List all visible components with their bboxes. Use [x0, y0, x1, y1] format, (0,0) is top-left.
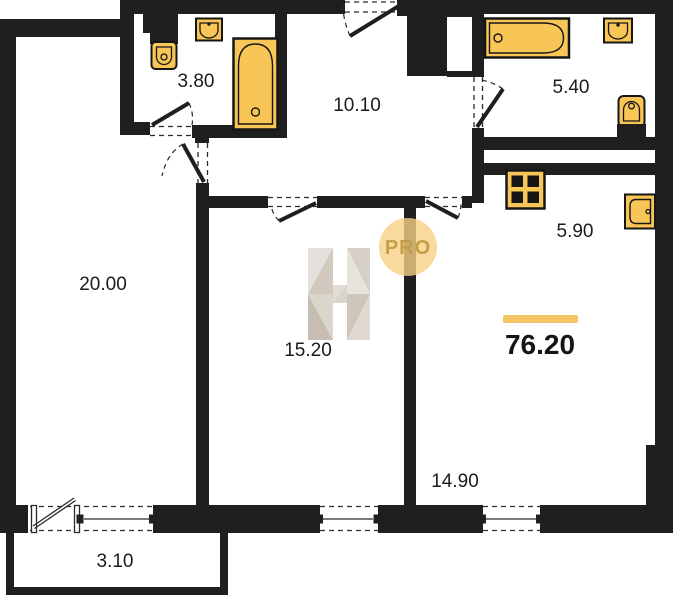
- bathtub-icon: [485, 19, 569, 58]
- wall-segment: [143, 14, 178, 33]
- h-logo: [308, 248, 370, 340]
- entrance-door: [343, 0, 407, 36]
- wall-segment: [120, 0, 345, 14]
- wall-segment: [196, 183, 209, 507]
- total-area-underline: [503, 315, 578, 323]
- wall-segment: [120, 0, 134, 135]
- sink-icon: [196, 19, 222, 41]
- total-area-badge: 76.20: [503, 315, 578, 360]
- door-ensuite-bathroom: [150, 103, 193, 136]
- wall-segment: [447, 71, 472, 77]
- area-label-kitchen: 5.90: [557, 221, 594, 242]
- wall-segment: [400, 0, 673, 14]
- area-label-bathroom: 5.40: [553, 77, 590, 98]
- sink-icon: [604, 19, 632, 43]
- wall-segment: [16, 505, 28, 533]
- wall-segment: [447, 14, 472, 17]
- toilet-icon: [150, 31, 178, 69]
- stove-icon: [507, 171, 545, 209]
- window-bedroom: [77, 515, 157, 524]
- wall-segment: [472, 128, 484, 203]
- door-bedroom: [162, 143, 208, 183]
- wall-segment: [655, 0, 673, 445]
- wall-segment: [484, 137, 655, 150]
- pro-badge: PRO: [379, 218, 437, 276]
- area-label-bedroom: 20.00: [79, 274, 127, 295]
- watermark-logo: PRO: [308, 218, 437, 340]
- door-living-room: [425, 198, 462, 219]
- toilet-icon: [617, 96, 646, 138]
- total-area-value: 76.20: [505, 329, 575, 360]
- floorplan-svg: 20.00 3.80 10.10 5.40 5.90 15.20 14.90 3…: [0, 0, 677, 600]
- bathtub-icon: [234, 39, 278, 130]
- wall-segment: [6, 587, 228, 595]
- area-label-bedroom-2: 15.20: [284, 340, 332, 361]
- wall-segment: [120, 122, 150, 135]
- door-bathroom: [474, 77, 503, 128]
- window-bedroom-2: [316, 507, 381, 531]
- wall-segment: [153, 505, 320, 533]
- area-label-hallway: 10.10: [333, 95, 381, 116]
- wall-segment: [220, 533, 228, 595]
- door-bedroom-2: [268, 198, 317, 222]
- window-living-room: [479, 507, 543, 531]
- wall-segment: [6, 533, 14, 588]
- kitchen-sink-icon: [625, 195, 655, 229]
- area-label-ensuite: 3.80: [178, 71, 215, 92]
- balcony-door: [30, 498, 152, 533]
- wall-segment: [472, 0, 484, 77]
- wall-segment: [0, 19, 127, 37]
- wall-segment: [0, 19, 16, 533]
- wall-segment: [209, 196, 268, 208]
- wall-segment: [195, 125, 209, 143]
- watermark-badge: PRO: [385, 237, 431, 259]
- wall-segment: [462, 196, 472, 208]
- wall-segment: [540, 505, 673, 533]
- floorplan-canvas: 20.00 3.80 10.10 5.40 5.90 15.20 14.90 3…: [0, 0, 677, 600]
- area-label-balcony: 3.10: [97, 551, 134, 572]
- wall-segment: [646, 445, 673, 507]
- area-label-living: 14.90: [431, 471, 479, 492]
- wall-segment: [378, 505, 483, 533]
- wall-segment: [407, 14, 447, 76]
